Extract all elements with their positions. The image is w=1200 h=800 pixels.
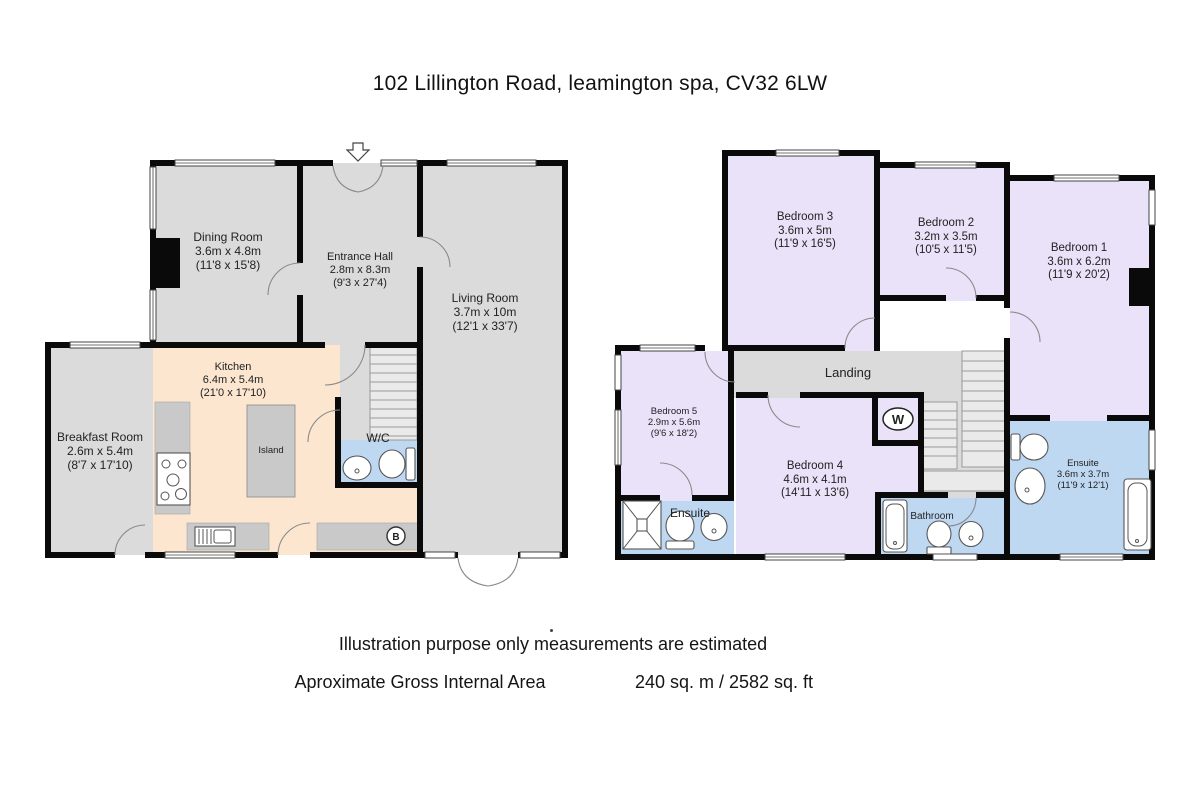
floorplan-page: 102 Lillington Road, leamington spa, CV3… — [0, 0, 1200, 800]
room-size-imperial: (9'6 x 18'2) — [574, 428, 774, 439]
room-size-metric: 4.6m x 4.1m — [715, 474, 915, 488]
svg-text:B: B — [392, 532, 399, 543]
room-name: W/C — [333, 431, 423, 445]
landing-label: Landing — [748, 365, 948, 380]
room-size-imperial: (11'9 x 20'2) — [979, 269, 1179, 283]
room-size-imperial: (9'3 x 27'4) — [260, 277, 460, 290]
room-size-imperial: (8'7 x 17'10) — [0, 458, 200, 472]
room-name: Bedroom 1 — [979, 242, 1179, 256]
ground-floor-plan: B Dining Room 3.6m x 4.8m (11'8 x 15'8) … — [40, 140, 580, 600]
living-room-area — [420, 163, 565, 555]
french-doors-arc — [458, 558, 518, 586]
wc-sink-icon — [343, 456, 371, 480]
room-size-imperial: (12'1 x 33'7) — [385, 319, 585, 333]
ensuite-right-toilet-icon — [1011, 434, 1048, 460]
room-name: Bedroom 4 — [715, 460, 915, 474]
bathroom-label: Bathroom — [872, 511, 992, 523]
ensuite-right-label: Ensuite 3.6m x 3.7m (11'9 x 12'1) — [983, 458, 1183, 492]
room-size-metric: 6.4m x 5.4m — [133, 374, 333, 387]
room-name: Dining Room — [128, 230, 328, 244]
washing-machine-icon: W — [883, 408, 913, 430]
room-size-metric: 2.8m x 8.3m — [260, 264, 460, 277]
kitchen-label: Kitchen 6.4m x 5.4m (21'0 x 17'10) — [133, 361, 333, 400]
room-name: Kitchen — [133, 361, 333, 374]
page-title: 102 Lillington Road, leamington spa, CV3… — [0, 72, 1200, 96]
gf-stairs — [370, 346, 417, 440]
wc-label: W/C — [333, 431, 423, 445]
breakfast-room-label: Breakfast Room 2.6m x 5.4m (8'7 x 17'10) — [0, 430, 200, 472]
room-size-metric: 2.9m x 5.6m — [574, 417, 774, 428]
room-name: Breakfast Room — [0, 430, 200, 444]
room-size-metric: 3.7m x 10m — [385, 305, 585, 319]
bedroom1-label: Bedroom 1 3.6m x 6.2m (11'9 x 20'2) — [979, 242, 1179, 283]
print-speck — [550, 629, 553, 632]
gross-area-value: 240 sq. m / 2582 sq. ft — [574, 672, 874, 693]
island-label: Island — [221, 445, 321, 456]
room-name: Living Room — [385, 291, 585, 305]
boiler-icon: B — [387, 527, 405, 545]
room-name: Bathroom — [872, 511, 992, 523]
room-name: Bedroom 2 — [846, 217, 1046, 231]
room-name: Entrance Hall — [260, 251, 460, 264]
bedroom5-label: Bedroom 5 2.9m x 5.6m (9'6 x 18'2) — [574, 406, 774, 440]
room-name: Ensuite — [983, 458, 1183, 469]
bathroom-toilet-icon — [927, 521, 951, 554]
first-floor-plan: W Bedroom 3 3.6m x 5m (11'9 x 16'5) Bedr… — [610, 145, 1160, 570]
room-name: Landing — [748, 365, 948, 380]
room-size-imperial: (11'9 x 12'1) — [983, 480, 1183, 491]
room-size-metric: 3.6m x 6.2m — [979, 256, 1179, 270]
room-size-imperial: (21'0 x 17'10) — [133, 387, 333, 400]
gf-room-fills — [48, 163, 565, 555]
bathroom-bath-icon — [883, 500, 907, 552]
room-name: Island — [221, 445, 321, 456]
room-name: Bedroom 5 — [574, 406, 774, 417]
room-size-imperial: (14'11 x 13'6) — [715, 487, 915, 501]
wc-toilet-icon — [379, 448, 415, 480]
svg-text:W: W — [892, 412, 905, 427]
disclaimer-text: Illustration purpose only measurements a… — [253, 634, 853, 655]
bedroom4-label: Bedroom 4 4.6m x 4.1m (14'11 x 13'6) — [715, 460, 915, 501]
room-size-metric: 2.6m x 5.4m — [0, 444, 200, 458]
entry-arrow-icon — [347, 143, 369, 161]
entrance-hall-label: Entrance Hall 2.8m x 8.3m (9'3 x 27'4) — [260, 251, 460, 290]
living-room-label: Living Room 3.7m x 10m (12'1 x 33'7) — [385, 291, 585, 333]
bathroom-sink-icon — [959, 522, 983, 547]
ensuite-left-label: Ensuite — [630, 506, 750, 520]
room-name: Ensuite — [630, 506, 750, 520]
kitchen-sink-icon — [195, 527, 235, 546]
room-size-metric: 3.6m x 3.7m — [983, 469, 1183, 480]
